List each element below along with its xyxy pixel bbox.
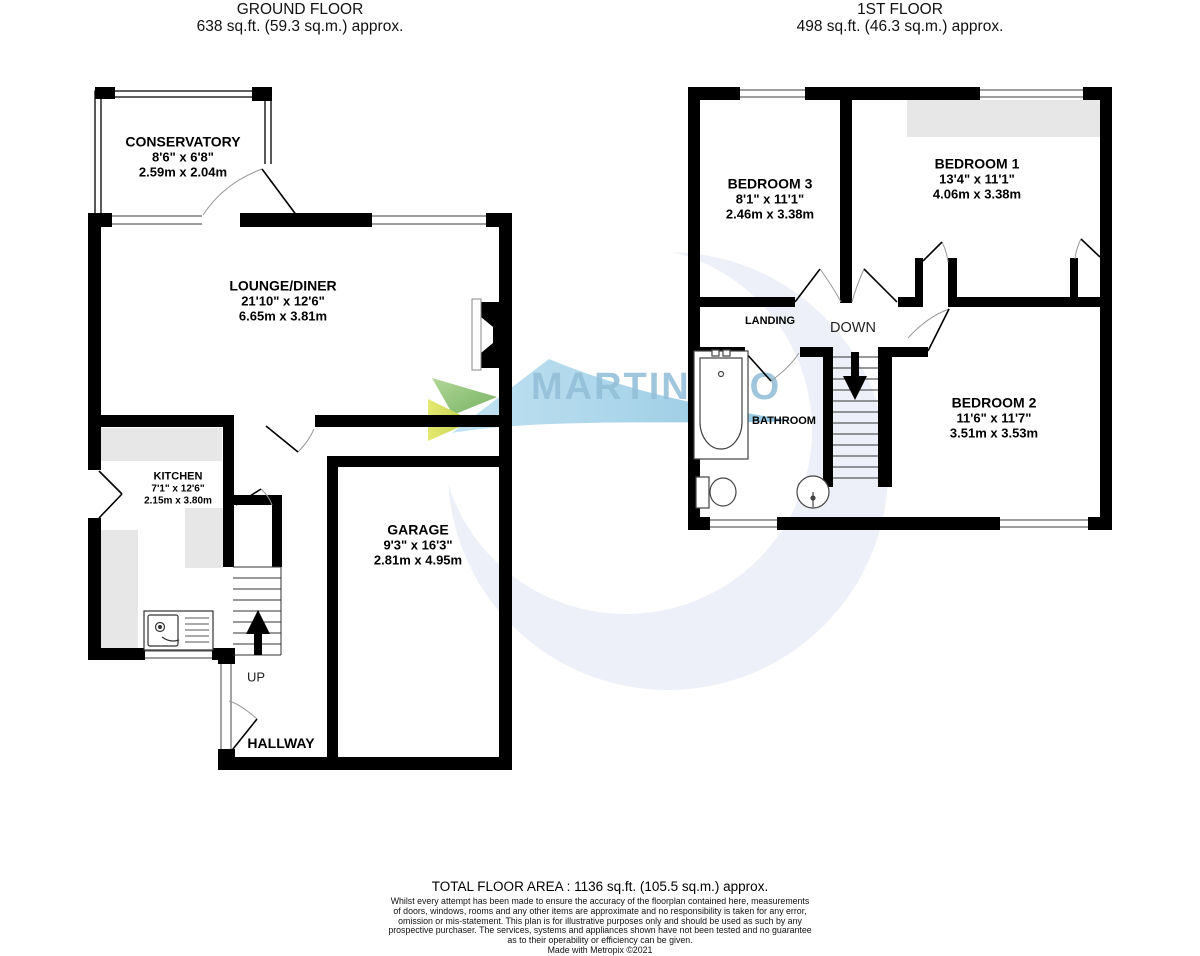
up-arrow: [246, 610, 270, 655]
kitchen-sink-unit: [144, 611, 213, 650]
ff-window-bed3: [740, 87, 805, 100]
bathtub: [694, 350, 748, 459]
stairs-ground: [233, 567, 281, 655]
gf-front-door-glazed: [218, 664, 235, 749]
first-floor-name: 1ST FLOOR: [797, 1, 1004, 18]
toilet: [696, 477, 736, 508]
room-label-garage: GARAGE 9'3" x 16'3" 2.81m x 4.95m: [374, 523, 462, 568]
total-floor-area: TOTAL FLOOR AREA : 1136 sq.ft. (105.5 sq…: [0, 879, 1200, 894]
floorplan-canvas: MARTIN&CO: [0, 0, 1200, 954]
room-label-bedroom3: BEDROOM 3 8'1" x 11'1" 2.46m x 3.38m: [726, 177, 814, 222]
room-label-conservatory: CONSERVATORY 8'6" x 6'8" 2.59m x 2.04m: [125, 135, 240, 180]
room-label-bedroom2: BEDROOM 2 11'6" x 11'7" 3.51m x 3.53m: [950, 396, 1038, 441]
kitchen-counter-left: [101, 530, 138, 648]
ground-floor-area: 638 sq.ft. (59.3 sq.m.) approx.: [197, 18, 404, 35]
down-label: DOWN: [830, 320, 876, 336]
ff-window-bed1: [980, 87, 1083, 100]
landing-label: LANDING: [745, 315, 795, 327]
room-label-kitchen: KITCHEN 7'1" x 12'6" 2.15m x 3.80m: [144, 470, 212, 508]
ground-floor-name: GROUND FLOOR: [197, 1, 404, 18]
gf-window-top-left: [112, 213, 202, 227]
footer: TOTAL FLOOR AREA : 1136 sq.ft. (105.5 sq…: [0, 879, 1200, 956]
ff-window-bathroom: [710, 517, 777, 530]
kitchen-counter-mid: [185, 508, 223, 568]
ff-window-bed2: [1000, 517, 1088, 530]
bathroom-label: BATHROOM: [752, 415, 816, 427]
basin: [797, 476, 829, 508]
metropix-credit: Made with Metropix ©2021: [0, 946, 1200, 956]
gf-window-top-right: [372, 213, 486, 227]
kitchen-counter-top: [101, 428, 222, 461]
ground-floor-title: GROUND FLOOR 638 sq.ft. (59.3 sq.m.) app…: [197, 1, 404, 35]
hallway-label: HALLWAY: [247, 735, 314, 751]
bedroom1-wardrobe: [907, 100, 1100, 137]
room-label-bedroom1: BEDROOM 1 13'4" x 11'1" 4.06m x 3.38m: [933, 157, 1021, 202]
up-label: UP: [247, 670, 265, 685]
first-floor-title: 1ST FLOOR 498 sq.ft. (46.3 sq.m.) approx…: [797, 1, 1004, 35]
first-floor-area: 498 sq.ft. (46.3 sq.m.) approx.: [797, 18, 1004, 35]
room-label-lounge: LOUNGE/DINER 21'10" x 12'6" 6.65m x 3.81…: [229, 279, 336, 324]
